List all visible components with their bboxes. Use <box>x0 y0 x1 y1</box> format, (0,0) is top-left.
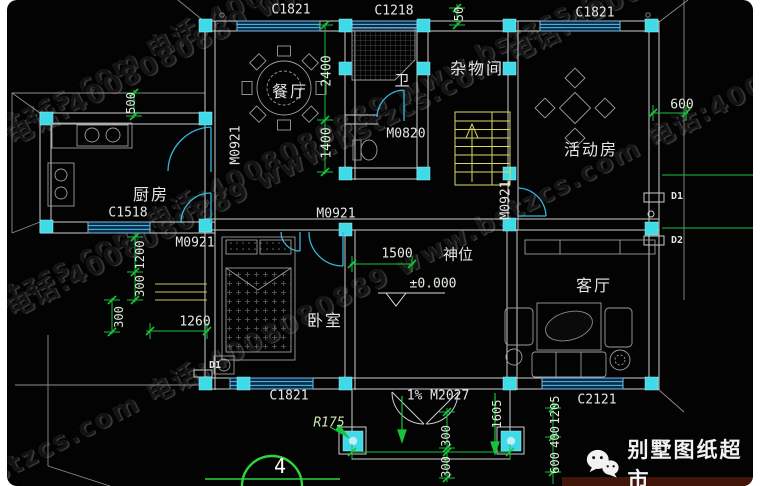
furniture <box>48 28 655 377</box>
screenshot-frame: www.bstzcs.com 电话:4008080889 www.bstzcs.… <box>0 0 760 486</box>
floor-plan-drawing <box>7 0 753 486</box>
brand-text: 别墅图纸超市 <box>628 434 753 486</box>
stairs <box>455 112 510 185</box>
door-swings <box>168 90 546 266</box>
cad-canvas: www.bstzcs.com 电话:4008080889 www.bstzcs.… <box>7 0 753 486</box>
wechat-icon <box>585 447 620 481</box>
brand-banner: 别墅图纸超市 <box>585 434 753 486</box>
